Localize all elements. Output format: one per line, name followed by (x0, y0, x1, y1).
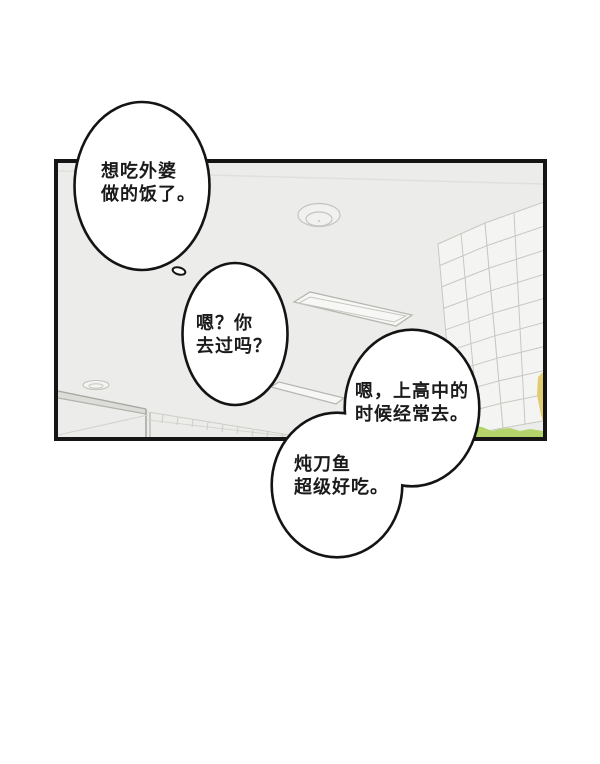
ceiling-lamp (298, 204, 340, 227)
speech-bubble-4-line-2: 超级好吃。 (294, 476, 389, 499)
speech-bubble-4-text: 炖刀鱼 超级好吃。 (294, 453, 389, 499)
small-ceiling-vent (83, 381, 109, 390)
tiled-wall-band (148, 412, 308, 437)
ceiling-light-panel-1 (294, 292, 412, 326)
speech-bubble-1-text: 想吃外婆 做的饭了。 (101, 160, 196, 206)
comic-page: 想吃外婆 做的饭了。 嗯？你 去过吗？ 嗯，上高中的 时候经常去。 炖刀鱼 超级… (0, 0, 600, 764)
speech-bubble-2-line-1: 嗯？你 (196, 312, 272, 335)
speech-bubble-2-line-2: 去过吗？ (196, 335, 272, 358)
speech-bubble-3-line-1: 嗯，上高中的 (355, 380, 469, 403)
ceiling-light-panel-2 (271, 382, 344, 404)
speech-bubble-3-line-2: 时候经常去。 (355, 403, 469, 426)
speech-bubble-1-line-2: 做的饭了。 (101, 183, 196, 206)
speech-bubble-4-line-1: 炖刀鱼 (294, 453, 389, 476)
speech-bubble-2-text: 嗯？你 去过吗？ (196, 312, 272, 358)
speech-bubble-3-text: 嗯，上高中的 时候经常去。 (355, 380, 469, 426)
wall-beam (58, 391, 150, 437)
speech-bubble-1-line-1: 想吃外婆 (101, 160, 196, 183)
